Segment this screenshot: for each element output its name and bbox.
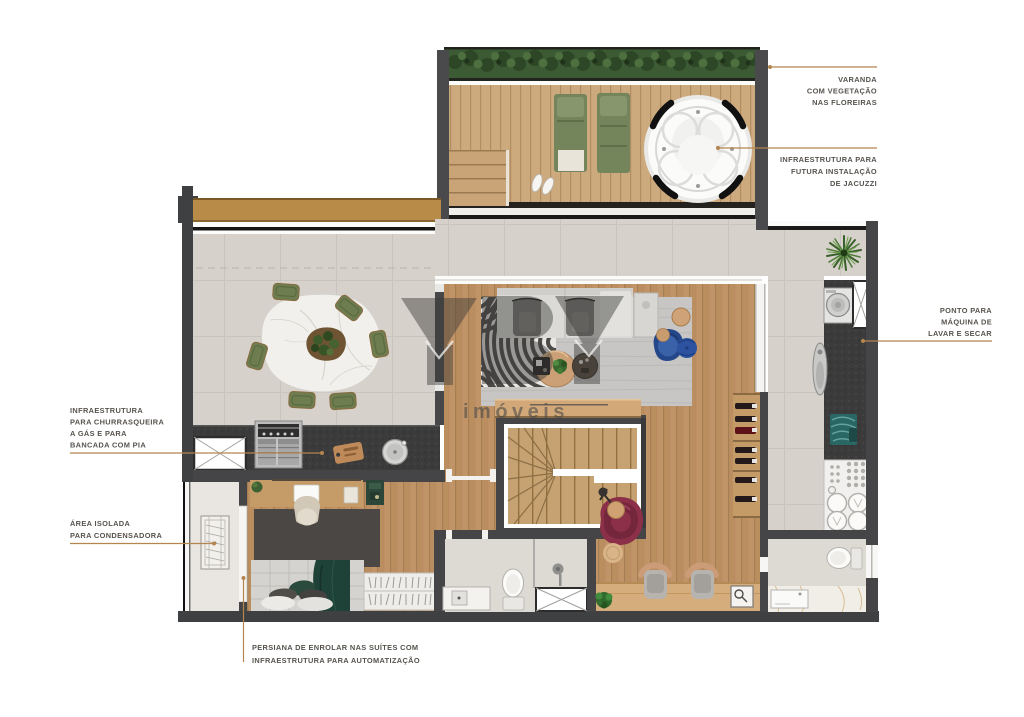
svg-text:MÁQUINA DE: MÁQUINA DE [941, 318, 992, 327]
svg-text:NAS FLOREIRAS: NAS FLOREIRAS [812, 98, 877, 107]
svg-text:ÁREA ISOLADA: ÁREA ISOLADA [70, 519, 130, 528]
svg-text:COM VEGETAÇÃO: COM VEGETAÇÃO [807, 87, 877, 96]
svg-text:INFRAESTRUTURA PARA AUTOMATIZA: INFRAESTRUTURA PARA AUTOMATIZAÇÃO [252, 656, 420, 665]
svg-text:BANCADA COM PIA: BANCADA COM PIA [70, 441, 146, 450]
svg-text:INFRAESTRUTURA PARA: INFRAESTRUTURA PARA [780, 155, 877, 164]
svg-text:PARA CHURRASQUEIRA: PARA CHURRASQUEIRA [70, 418, 164, 427]
svg-text:VARANDA: VARANDA [838, 75, 877, 84]
svg-text:FUTURA INSTALAÇÃO: FUTURA INSTALAÇÃO [791, 167, 877, 176]
svg-text:LAVAR E SECAR: LAVAR E SECAR [928, 329, 992, 338]
svg-text:DE JACUZZI: DE JACUZZI [830, 179, 877, 188]
svg-text:PONTO PARA: PONTO PARA [940, 306, 992, 315]
svg-text:imóveis: imóveis [463, 401, 569, 423]
svg-text:A GÁS E PARA: A GÁS E PARA [70, 429, 127, 438]
svg-text:INFRAESTRUTURA: INFRAESTRUTURA [70, 406, 143, 415]
svg-text:PERSIANA DE ENROLAR NAS SUÍTES: PERSIANA DE ENROLAR NAS SUÍTES COM [252, 643, 418, 652]
svg-text:PARA CONDENSADORA: PARA CONDENSADORA [70, 531, 162, 540]
